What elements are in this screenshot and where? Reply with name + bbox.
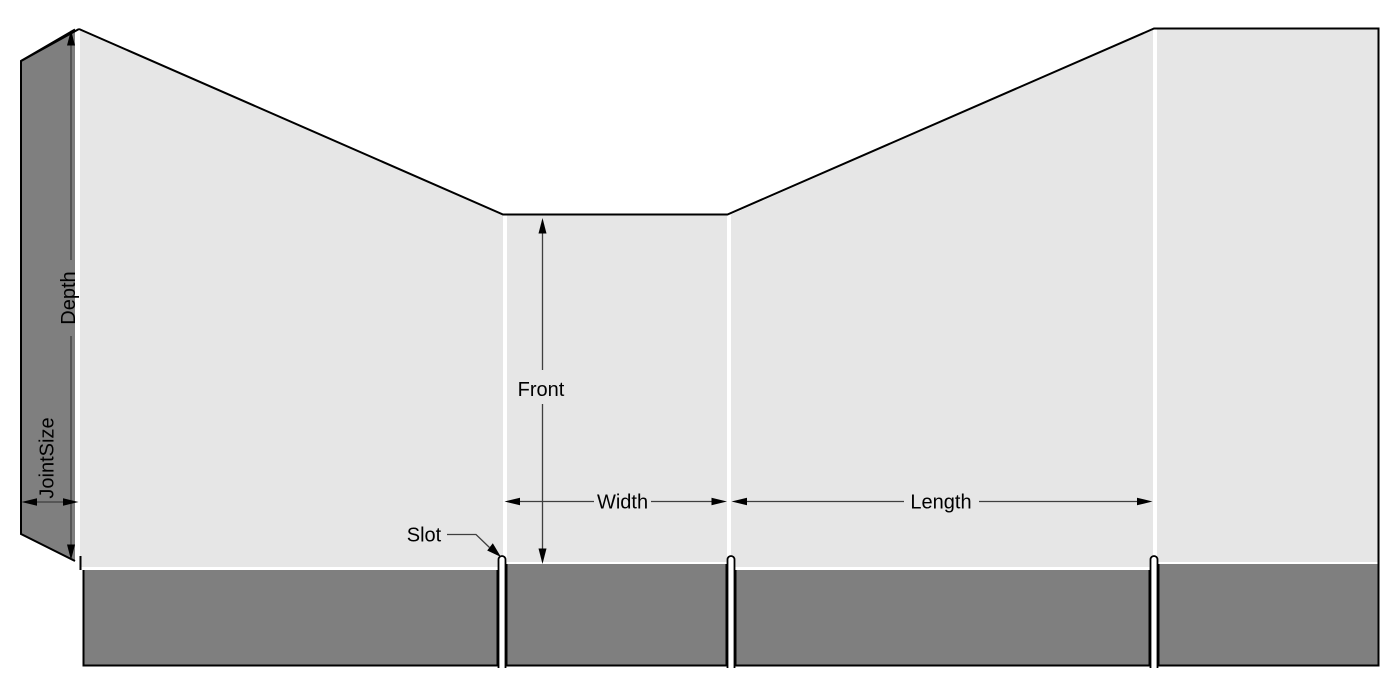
bottom-flap-4 [1158,564,1379,667]
slot-notch-1 [499,556,506,668]
depth-label: Depth [58,271,80,324]
jointsize-label: JointSize [37,417,59,498]
bottom-flap-3 [735,570,1151,667]
length-label: Length [910,492,971,514]
width-panel-right [1157,30,1378,563]
slot-label: Slot [407,525,442,547]
slot-notch-3 [1151,556,1158,668]
dieline-canvas: Depth JointSize Front Width Length Slot [0,0,1400,700]
slot-notch-2 [728,556,735,668]
bottom-flap-2 [506,564,728,667]
front-label: Front [518,379,565,401]
width-label: Width [597,492,648,514]
bottom-flap-1 [83,570,499,667]
dieline-drawing: Depth JointSize Front Width Length Slot [0,0,1400,700]
